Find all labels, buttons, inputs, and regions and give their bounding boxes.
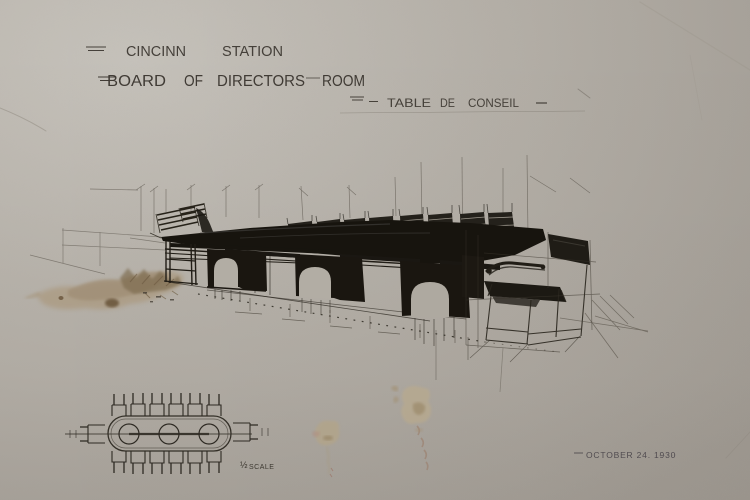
svg-text:OF: OF <box>184 73 203 90</box>
svg-text:BOARD: BOARD <box>107 73 166 90</box>
svg-text:ROOM: ROOM <box>322 73 365 90</box>
svg-text:CINCINN: CINCINN <box>126 44 186 60</box>
svg-text:OCTOBER 24. 1930: OCTOBER 24. 1930 <box>586 450 676 460</box>
svg-text:TABLE: TABLE <box>387 96 431 110</box>
svg-text:CONSEIL: CONSEIL <box>468 96 519 110</box>
svg-text:½: ½ <box>240 460 248 470</box>
svg-text:SCALE: SCALE <box>249 464 274 471</box>
svg-text:DE: DE <box>440 96 455 110</box>
svg-text:DIRECTORS: DIRECTORS <box>217 73 305 90</box>
svg-text:STATION: STATION <box>222 44 283 60</box>
